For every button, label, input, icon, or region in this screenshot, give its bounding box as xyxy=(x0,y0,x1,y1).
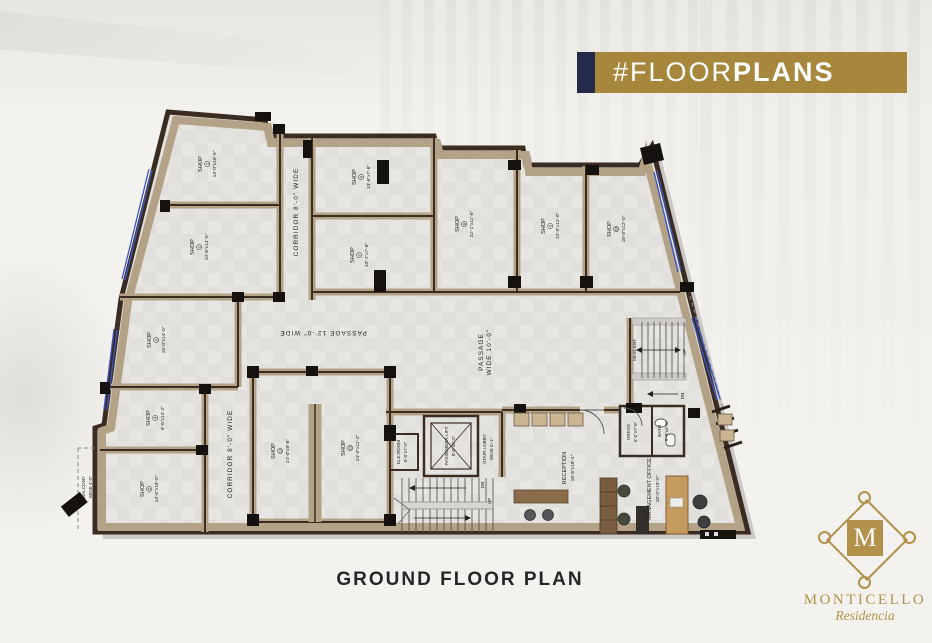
plan-title: GROUND FLOOR PLAN xyxy=(320,569,600,591)
svg-text:5'-0"x7'-0": 5'-0"x7'-0" xyxy=(403,441,408,462)
svg-text:SHOP: SHOP xyxy=(271,443,277,459)
banner-accent-block xyxy=(577,52,595,93)
stool xyxy=(525,510,536,521)
emblem-dot xyxy=(858,491,871,504)
svg-text:PASSENGER LIFT: PASSENGER LIFT xyxy=(444,426,449,465)
svg-text:SHOP: SHOP xyxy=(198,156,204,172)
svg-text:SHOP: SHOP xyxy=(607,221,613,237)
guest-chair xyxy=(698,516,710,528)
svg-text:8'-0"x8'-0": 8'-0"x8'-0" xyxy=(451,435,456,456)
svg-text:10: 10 xyxy=(614,226,619,231)
svg-text:BATH: BATH xyxy=(657,425,662,437)
svg-text:SHOP: SHOP xyxy=(341,440,347,456)
svg-text:13'-6"x18'-0": 13'-6"x18'-0" xyxy=(154,475,160,502)
svg-text:24'-0"x8'-6": 24'-0"x8'-6" xyxy=(285,439,291,463)
svg-text:SHOP: SHOP xyxy=(146,410,152,426)
stool xyxy=(543,510,554,521)
emblem-dot xyxy=(903,531,916,544)
svg-text:9'-6"x14'-2": 9'-6"x14'-2" xyxy=(160,406,166,430)
emblem-dot xyxy=(858,576,871,589)
monogram-letter: M xyxy=(853,525,876,551)
svg-text:22'-1"x11'-6": 22'-1"x11'-6" xyxy=(469,210,475,237)
svg-text:18'-0"x12'-0": 18'-0"x12'-0" xyxy=(621,215,627,242)
main-ent-label: MAIN ENT xyxy=(632,339,637,361)
svg-text:STAIR LOBBY: STAIR LOBBY xyxy=(482,434,487,464)
brand-logo: M MONTICELLO Residencia xyxy=(798,492,932,640)
svg-text:WIDE 4'-0": WIDE 4'-0" xyxy=(88,475,93,498)
logo-emblem-icon: M xyxy=(819,492,911,584)
svg-text:RECEPTION: RECEPTION xyxy=(562,452,568,485)
passage-h-label: PASSAGE 12'-0" WIDE xyxy=(279,329,367,336)
svg-text:18'-0"x18'-0": 18'-0"x18'-0" xyxy=(655,475,661,502)
corridor-bottom-label: CORRIDOR 8'-0" WIDE xyxy=(227,410,234,499)
svg-text:15'-0"x14'-0": 15'-0"x14'-0" xyxy=(161,326,167,353)
svg-text:10'-1"x7'-6": 10'-1"x7'-6" xyxy=(364,243,370,267)
up-label: UP xyxy=(682,349,687,355)
svg-text:SHOP: SHOP xyxy=(541,218,547,234)
banner-text-regular: #FLOOR xyxy=(613,57,733,87)
balcony-label: BALCONY WIDE 4'-0" xyxy=(81,475,93,498)
banner-text-bold: PLANS xyxy=(733,57,835,87)
office-chair xyxy=(693,495,707,509)
svg-text:13'-0"x16'-9": 13'-0"x16'-9" xyxy=(212,150,218,177)
svg-text:SHOP: SHOP xyxy=(140,481,146,497)
corridor-top-label: CORRIDOR 8'-0" WIDE xyxy=(293,168,300,257)
svg-text:SHOP: SHOP xyxy=(455,216,461,232)
emblem-dot xyxy=(818,531,831,544)
svg-text:13'-0"x11'-0": 13'-0"x11'-0" xyxy=(555,212,561,239)
svg-text:SHOP: SHOP xyxy=(352,169,358,185)
svg-text:WIDE 10'-0": WIDE 10'-0" xyxy=(486,329,493,376)
svg-text:PASSAGE: PASSAGE xyxy=(478,333,485,371)
floor-plan: SHOP 1 13'-0"x16'-9" SHOP 2 10'-6"x14'-6… xyxy=(0,0,932,643)
logo-name: MONTICELLO xyxy=(798,592,932,609)
emblem-monogram: M xyxy=(847,520,883,556)
svg-text:5'-0"x7'-6": 5'-0"x7'-6" xyxy=(633,421,638,442)
svg-text:13'-6"x7'-6": 13'-6"x7'-6" xyxy=(366,165,372,189)
svg-text:5'-0"x4'-6": 5'-0"x4'-6" xyxy=(664,420,669,441)
dn2-label: DN xyxy=(480,482,485,489)
svg-text:WIDE 5'-1": WIDE 5'-1" xyxy=(489,437,494,460)
plant xyxy=(618,513,630,525)
up2-label: UP xyxy=(487,498,492,504)
passage-v-label: PASSAGE WIDE 10'-0" xyxy=(478,329,493,376)
svg-text:SHOP: SHOP xyxy=(147,332,153,348)
plant xyxy=(618,485,630,497)
svg-text:18'-6"x18'-4": 18'-6"x18'-4" xyxy=(570,454,576,481)
svg-text:10'-6"x14'-6": 10'-6"x14'-6" xyxy=(204,233,210,260)
svg-text:MANAGEMENT OFFICE: MANAGEMENT OFFICE xyxy=(647,458,653,520)
dn-label: DN xyxy=(680,393,685,400)
reception-counter xyxy=(514,490,568,503)
svg-text:BALCONY: BALCONY xyxy=(81,476,86,498)
floorplans-banner: #FLOORPLANS xyxy=(577,52,907,93)
logo-script: Residencia xyxy=(798,608,932,624)
svg-text:ELE.ROOM: ELE.ROOM xyxy=(396,440,401,464)
svg-text:24'-0"x11'-2": 24'-0"x11'-2" xyxy=(355,434,361,461)
banner-text: #FLOORPLANS xyxy=(613,57,835,88)
svg-text:DRESS: DRESS xyxy=(626,424,631,440)
svg-text:12: 12 xyxy=(348,445,353,450)
svg-text:SHOP: SHOP xyxy=(350,247,356,263)
svg-text:SHOP: SHOP xyxy=(190,239,196,255)
